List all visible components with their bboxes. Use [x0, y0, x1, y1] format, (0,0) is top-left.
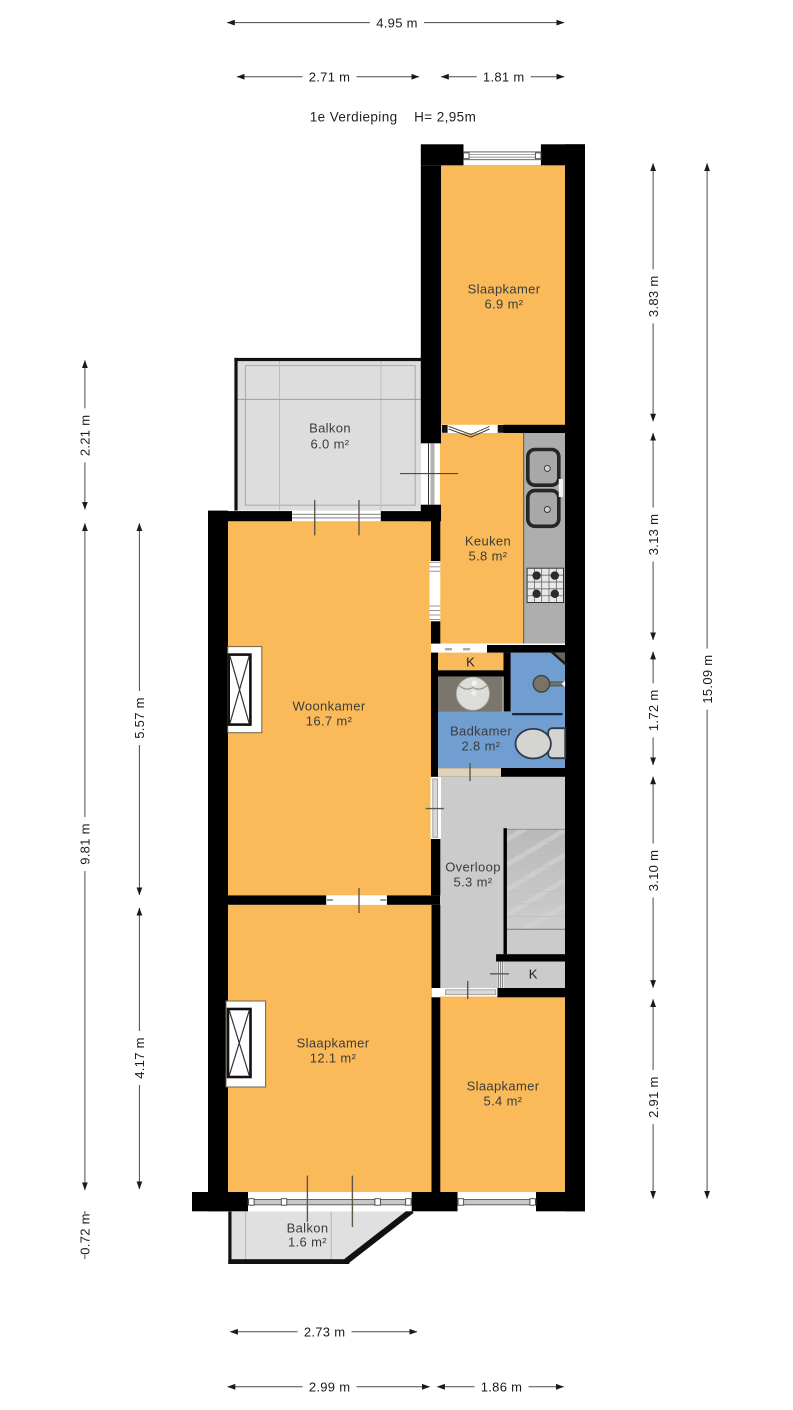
svg-text:6.0 m²: 6.0 m² [311, 437, 350, 452]
svg-text:Balkon: Balkon [287, 1221, 329, 1236]
svg-text:Balkon: Balkon [309, 421, 351, 436]
svg-text:Slaapkamer: Slaapkamer [467, 1079, 540, 1094]
svg-text:1.72 m: 1.72 m [646, 690, 661, 732]
svg-text:3.10 m: 3.10 m [646, 850, 661, 892]
svg-text:16.7 m²: 16.7 m² [306, 714, 353, 729]
svg-text:2.71 m: 2.71 m [309, 69, 351, 84]
svg-text:Overloop: Overloop [445, 860, 501, 875]
svg-text:2.73 m: 2.73 m [304, 1325, 346, 1340]
svg-text:9.81 m: 9.81 m [78, 823, 93, 865]
svg-text:15.09 m: 15.09 m [700, 655, 715, 704]
svg-text:Woonkamer: Woonkamer [293, 699, 366, 714]
svg-text:6.9 m²: 6.9 m² [485, 297, 524, 312]
svg-text:3.83 m: 3.83 m [646, 276, 661, 318]
svg-text:2.99 m: 2.99 m [309, 1380, 351, 1395]
svg-text:4.95 m: 4.95 m [376, 15, 418, 30]
svg-text:Slaapkamer: Slaapkamer [468, 282, 541, 297]
svg-text:1.6 m²: 1.6 m² [288, 1235, 327, 1250]
svg-text:Slaapkamer: Slaapkamer [297, 1036, 370, 1051]
svg-text:Badkamer: Badkamer [450, 724, 512, 739]
svg-text:2.21 m: 2.21 m [78, 415, 93, 457]
svg-text:3.13 m: 3.13 m [646, 514, 661, 556]
svg-text:Keuken: Keuken [465, 534, 511, 549]
svg-text:12.1 m²: 12.1 m² [310, 1051, 357, 1066]
svg-text:K: K [466, 655, 475, 670]
svg-text:1.86 m: 1.86 m [481, 1380, 523, 1395]
svg-text:0.72 m: 0.72 m [78, 1213, 93, 1255]
svg-text:5.57 m: 5.57 m [132, 697, 147, 739]
svg-text:5.3 m²: 5.3 m² [454, 875, 493, 890]
svg-text:2.91 m: 2.91 m [646, 1076, 661, 1118]
svg-text:2.8 m²: 2.8 m² [462, 739, 501, 754]
svg-text:4.17 m: 4.17 m [132, 1037, 147, 1079]
svg-text:5.4 m²: 5.4 m² [484, 1094, 523, 1109]
svg-text:1.81 m: 1.81 m [483, 69, 525, 84]
svg-text:5.8 m²: 5.8 m² [469, 549, 508, 564]
svg-text:K: K [529, 967, 538, 982]
svg-text:1e Verdieping H= 2,95m: 1e Verdieping H= 2,95m [310, 110, 476, 125]
